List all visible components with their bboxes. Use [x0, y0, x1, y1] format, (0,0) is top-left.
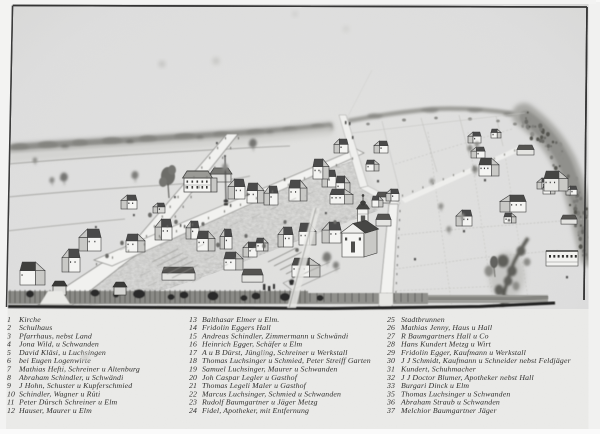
svg-text:12Hauser, Maurer u Elm: 12Hauser, Maurer u Elm [7, 406, 92, 415]
svg-text:24Fidel, Apotheker, mit Entfer: 24Fidel, Apotheker, mit Entfernung [189, 406, 309, 415]
svg-text:37Melchior Baumgartner Jäger: 37Melchior Baumgartner Jäger [386, 406, 498, 415]
